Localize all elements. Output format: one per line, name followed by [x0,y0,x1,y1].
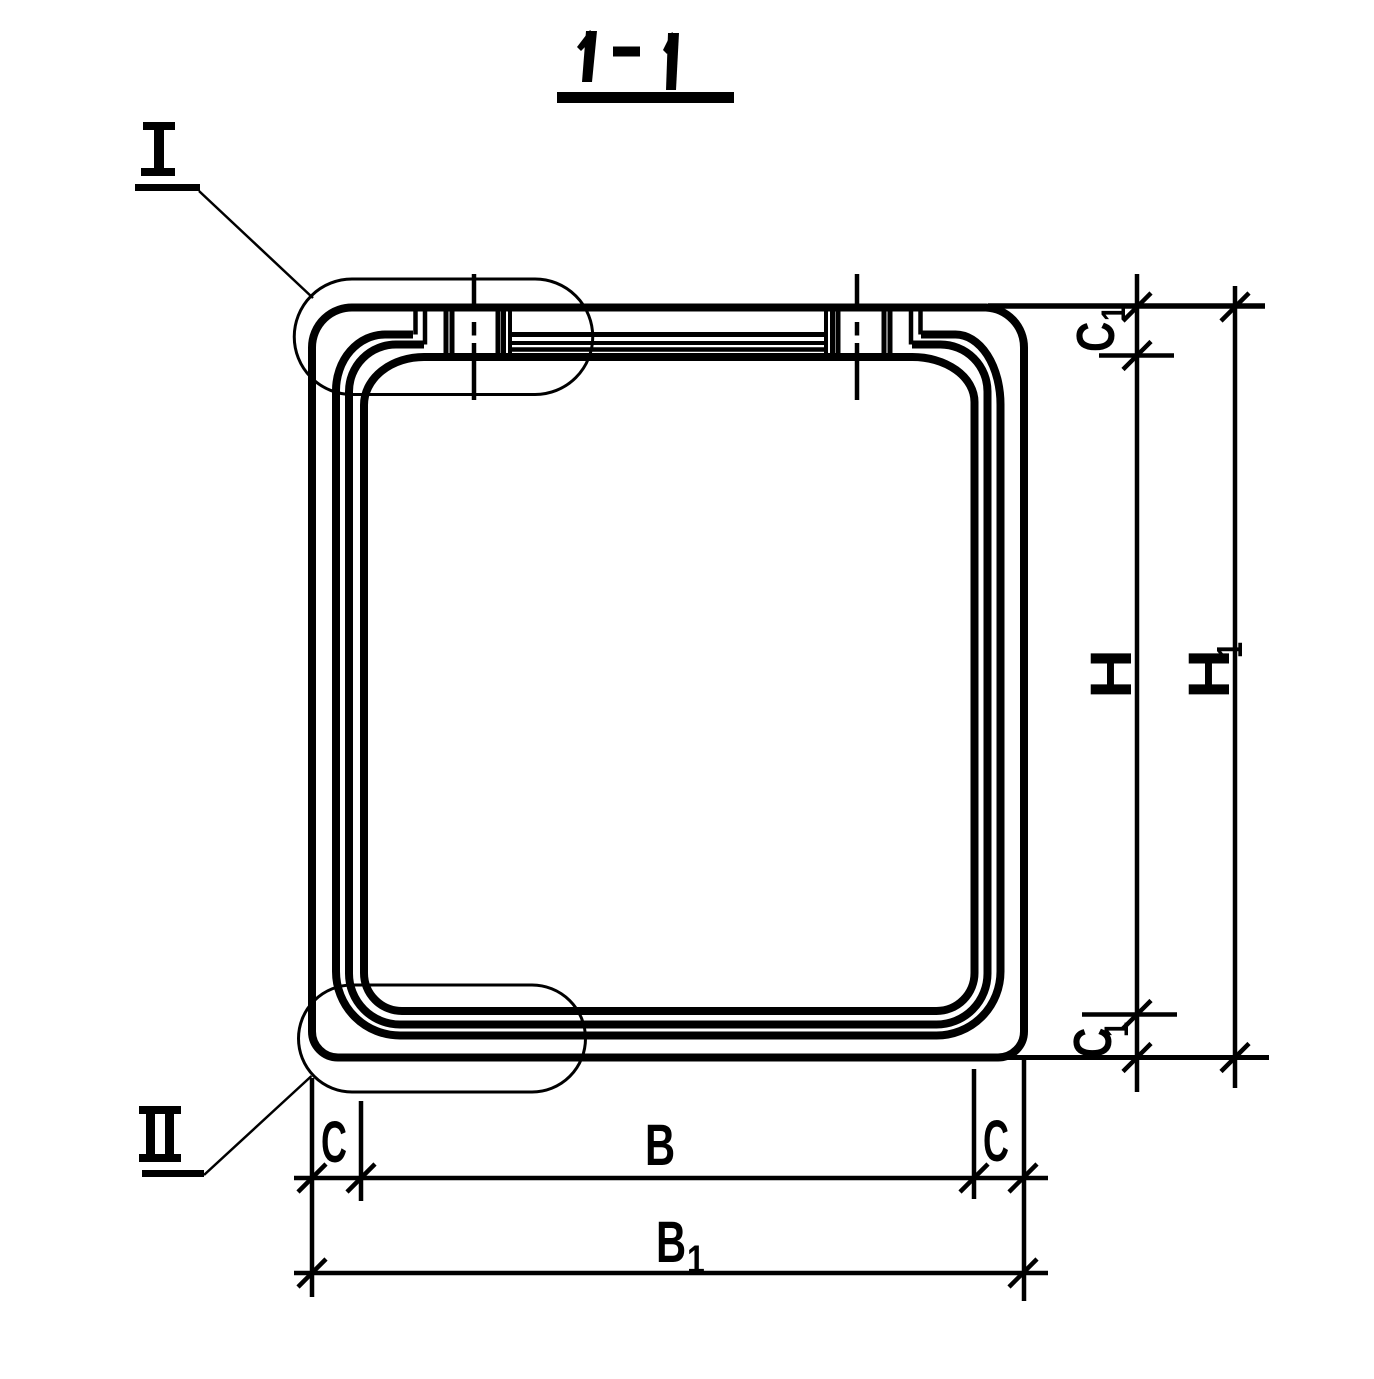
svg-text:C: C [321,1110,347,1175]
svg-text:1: 1 [1094,306,1133,321]
svg-text:C: C [983,1109,1009,1174]
svg-text:B: B [645,1112,675,1177]
svg-text:1: 1 [1097,1022,1136,1037]
svg-text:B: B [656,1209,686,1274]
svg-text:1: 1 [687,1237,705,1282]
svg-text:1: 1 [1209,642,1250,658]
svg-text:C: C [1066,322,1126,352]
svg-text:H: H [1078,649,1143,699]
